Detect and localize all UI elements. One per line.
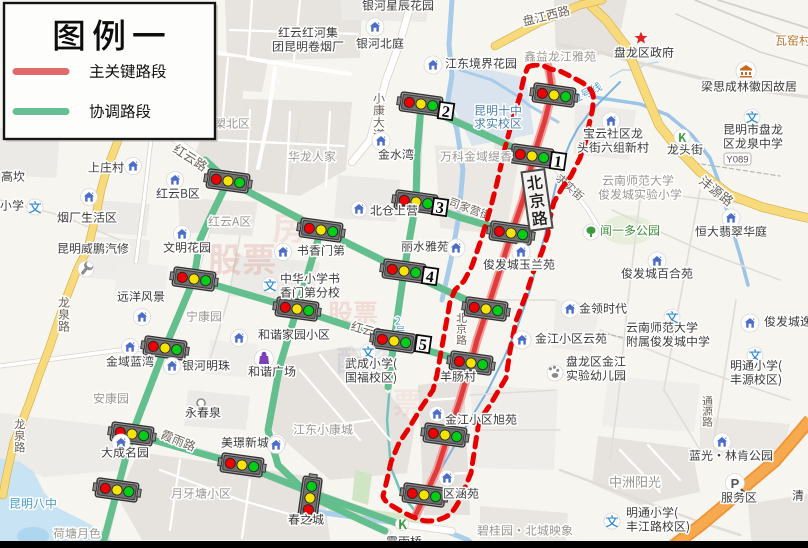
svg-text:P: P (731, 476, 740, 491)
svg-text:Y089: Y089 (726, 155, 748, 166)
